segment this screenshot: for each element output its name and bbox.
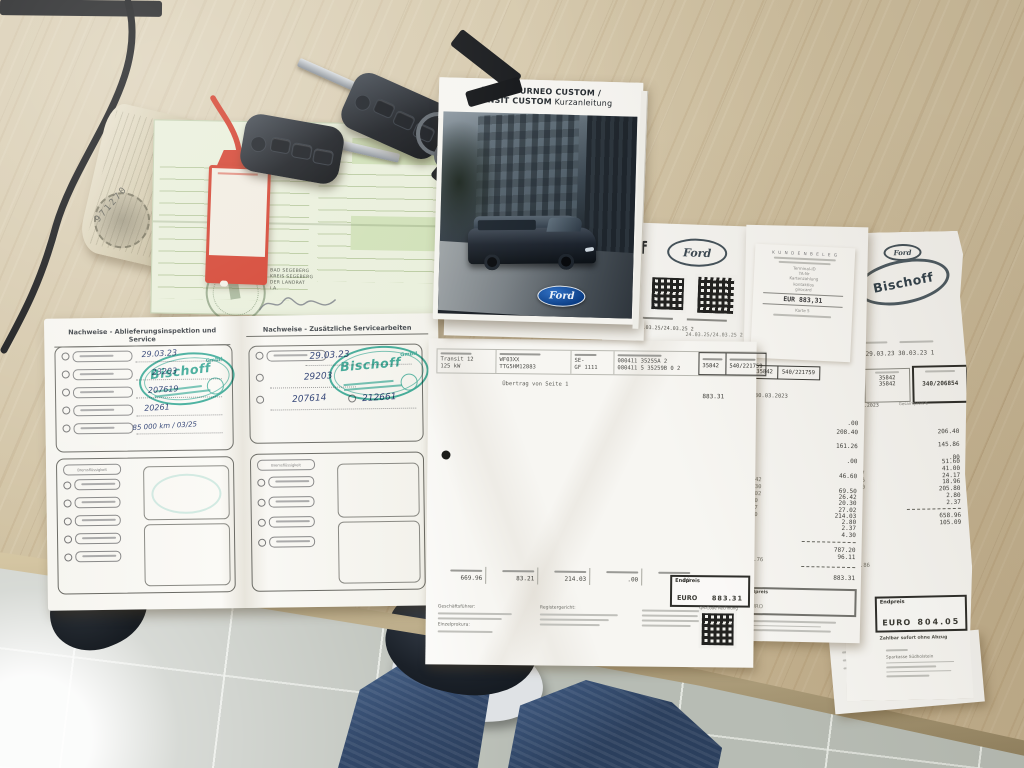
field-label: [502, 570, 534, 572]
field-label: [500, 353, 541, 355]
row-marker: [62, 388, 70, 396]
row-label: [276, 540, 310, 542]
total-value: .00: [627, 576, 638, 583]
invoice-header-table: Transit 12125 kW WF03XXTTG5HM12883 SE-GF…: [436, 348, 766, 376]
fine-print-line: [886, 670, 951, 673]
list-value: 208.40: [836, 428, 858, 437]
carryover-value: 883.31: [678, 393, 724, 400]
row-label: [82, 519, 116, 521]
fine-print-line: [642, 625, 691, 628]
fine-print-line: [642, 615, 698, 618]
field-label: [450, 570, 482, 572]
fine-print-line: [438, 630, 493, 633]
footer-label: Einzelprokura:: [438, 622, 470, 627]
code-cell: SE-GF 1111: [570, 351, 613, 374]
fine-print-line: [886, 649, 908, 651]
endpreis-label: Endpreis: [675, 578, 700, 584]
total-cell: 214.03: [537, 567, 589, 584]
service-right-header: Nachweise - Zusätzliche Servicearbeiten: [246, 323, 428, 337]
invoice-middle: K U N D E N B E L E G Terminal-ID TA-Nr …: [738, 225, 869, 643]
ford-manual-booklet: FORD TOURNEO CUSTOM / TRANSIT CUSTOM Kur…: [433, 77, 644, 325]
reg-cell: 080411 35255A 2080411 5 35259B 0 2: [613, 351, 694, 374]
field-label: [554, 571, 586, 573]
field-label: [658, 572, 690, 574]
qr-code: [651, 277, 684, 310]
ford-logo-text: Ford: [549, 290, 575, 302]
endpreis-box: Endpreis EURO: [740, 587, 857, 617]
total-value: 214.03: [564, 575, 586, 582]
photo-desk-scene: 971270 BAD SEGEBERG KREIS SEGEBERG DER L…: [0, 0, 1024, 768]
ford-oval-outline: Ford: [667, 238, 728, 268]
row-line: [136, 414, 222, 416]
service-page-right: Nachweise - Zusätzliche Servicearbeiten …: [242, 319, 436, 602]
subtotal-separator: [802, 541, 856, 543]
invoice-number-cell: 540/221759: [725, 353, 765, 374]
invoice-footer: Geschäftsführer: Einzelprokura: Register…: [438, 604, 712, 638]
list-value: 4.30: [841, 533, 856, 540]
key2-ford-button: [352, 92, 373, 113]
list-value: 161.26: [836, 439, 858, 454]
total-cell: .00: [589, 568, 641, 585]
invoice-number-box: 340/206854: [912, 365, 969, 404]
row-label-pill: [73, 405, 133, 417]
key1-ford-button: [249, 135, 268, 154]
handwritten-value: 207614: [292, 393, 327, 405]
vehicle-power: 125 kW: [440, 363, 492, 371]
list-value: 2.37: [946, 500, 961, 507]
fine-print-line: [642, 610, 705, 613]
amounts-tight: 26.4220.3027.02214.032.802.374.30: [834, 495, 857, 540]
row-marker: [258, 519, 266, 527]
row-label-pill: [72, 351, 132, 363]
van-side-window: [478, 220, 536, 230]
row-label: [274, 354, 308, 356]
row-marker: [62, 406, 70, 414]
row-marker: [256, 396, 264, 404]
stamp-field: [337, 463, 420, 518]
stamp-gmbh: GmbH: [400, 351, 418, 358]
field-label: [575, 354, 597, 356]
net-tax: 658.96 105.09: [939, 512, 961, 526]
row-label-pill: [74, 497, 120, 509]
list-value: 145.86: [938, 438, 960, 451]
row-label-pill: [268, 496, 314, 508]
invoice-number: 540/221759: [777, 366, 819, 379]
fine-print-line: [438, 617, 502, 620]
ford-oval-text: Ford: [894, 248, 912, 257]
total-cell: 669.96: [434, 566, 485, 583]
fine-print-line: [886, 675, 929, 677]
field-label: [925, 370, 955, 372]
carryover-label: Übertrag von Seite 1: [502, 381, 568, 388]
tag-print-line: [218, 172, 258, 175]
row-label-pill: [75, 533, 121, 545]
transit-van: [468, 209, 596, 268]
order-number: 35842: [702, 363, 722, 370]
tax-amount: 105.09: [939, 519, 961, 526]
row-label-pill: [269, 536, 315, 548]
group-label: Bremsflüssigkeit: [271, 463, 301, 467]
row-label: [80, 391, 114, 393]
field-label: [730, 358, 756, 360]
endpreis-total: 883.31: [712, 594, 743, 602]
row-marker: [258, 539, 266, 547]
van-windshield: [546, 217, 583, 231]
fine-print-line: [899, 340, 933, 342]
net-tax: 787.20 96.11: [834, 547, 856, 561]
row-label-pill: [74, 479, 120, 491]
order-number-2: 35842: [865, 380, 909, 387]
row-marker: [64, 517, 72, 525]
row-label: [275, 480, 309, 482]
vehicle-model: Transit 12: [440, 356, 492, 364]
fine-print-line: [746, 629, 831, 632]
row-label: [276, 520, 310, 522]
key2-lock-button: [372, 98, 396, 120]
row-label: [82, 537, 116, 539]
ford-oval-text: Ford: [683, 246, 711, 260]
booklet-cover-photo: Ford: [438, 111, 638, 318]
row-label-pill: [73, 369, 133, 381]
fine-print-line: [774, 314, 831, 319]
invoice-main: 24.03.25/24.03.25 2 Transit 12125 kW WF0…: [425, 338, 756, 667]
row-label: [276, 500, 310, 502]
fine-print-block: [746, 617, 846, 636]
signature: [255, 286, 340, 317]
order-invoice-box: 35842 540/221759: [698, 352, 766, 375]
row-marker: [62, 424, 70, 432]
subtotal-separator: [907, 508, 961, 510]
row-marker: [64, 553, 72, 561]
stamp-field: [338, 521, 421, 584]
totals-row: 669.96 83.21 214.03 .00 .00: [434, 566, 693, 585]
fine-print-line: [886, 665, 936, 668]
stamp-name: Bischoff: [339, 354, 401, 374]
total-value: 669.96: [460, 574, 482, 581]
row-label-pill: [73, 423, 133, 435]
row-label: [79, 355, 113, 357]
service-row: 85 000 km / 03/25: [56, 417, 232, 437]
fine-print-line: [643, 317, 673, 320]
field-label: [703, 358, 723, 360]
payment-note: Zahlbar sofort ohne Abzug: [880, 635, 948, 641]
qr-code: [702, 613, 734, 645]
row-marker: [63, 481, 71, 489]
amounts-spaced: 161.26.0046.6069.50: [835, 439, 858, 499]
stamp-gmbh: GmbH: [205, 356, 223, 364]
endpreis-label: Endpreis: [880, 599, 905, 606]
row-marker: [258, 499, 266, 507]
fine-print-line: [886, 661, 954, 664]
row-line: [137, 432, 223, 434]
footer-label: Registergericht:: [540, 605, 576, 610]
key2-blade: [297, 58, 357, 91]
field-label: [606, 571, 638, 573]
fine-print-line: [438, 612, 512, 615]
van-wheel: [558, 254, 574, 270]
fine-print-line: [687, 318, 727, 321]
fine-print-line: [746, 624, 821, 627]
row-marker: [64, 535, 72, 543]
red-key-tag: [205, 165, 271, 285]
bank-details: Sparkasse Südholstein: [886, 645, 959, 680]
row-label: [80, 373, 114, 375]
total-value: 83.21: [516, 575, 534, 582]
row-label: [80, 427, 114, 429]
fine-print-line: [540, 623, 600, 626]
row-label-pill: [269, 516, 315, 528]
row-marker: [64, 499, 72, 507]
row-label-pill: [75, 515, 121, 527]
stamp-emblem: [206, 376, 225, 395]
order-box: 35842 35842: [864, 368, 911, 403]
endpreis-box: Endpreis EURO 883.31: [670, 575, 750, 608]
endpreis-box: Endpreis EURO 804.05: [875, 595, 968, 633]
group-label: Bremsflüssigkeit: [77, 467, 107, 471]
order-number-cell: 35842: [699, 353, 725, 374]
key2-unlock-button: [392, 110, 416, 132]
total-cell: 83.21: [485, 567, 537, 584]
endpreis-currency: EURO: [882, 618, 911, 628]
key1-unlock-button: [291, 142, 313, 160]
field-label: [441, 352, 472, 354]
invoice-dates: 29.03.23 30.03.23 1: [866, 349, 935, 357]
row-marker: [257, 479, 265, 487]
total-separator: [801, 566, 855, 568]
amounts-tight: 51.6041.0024.1718.96205.802.802.37: [938, 459, 961, 507]
key1-lock-button: [269, 136, 291, 154]
service-empty-group: Bremsflüssigkeit: [250, 451, 426, 591]
field-label: [618, 354, 662, 356]
service-empty-group: Bremsflüssigkeit: [56, 456, 236, 594]
row-label-pill: [73, 387, 133, 399]
list-value: 206.40: [937, 425, 959, 438]
list-value: 46.60: [839, 469, 857, 484]
row-label: [82, 501, 116, 503]
footer-col-registry: Registergericht:: [540, 605, 632, 637]
invoice-number: 340/206854: [914, 379, 966, 387]
fine-print-line: [540, 613, 618, 616]
punch-hole: [441, 450, 450, 459]
invoice-total: 883.31: [833, 575, 855, 582]
stamp-name: Bischoff: [149, 360, 211, 382]
amounts-top: .00208.40: [836, 419, 858, 437]
fine-print-line: [746, 620, 836, 623]
row-line: [270, 408, 416, 411]
vin-line2: TTG5HM12883: [499, 364, 567, 372]
row-label-pill: [268, 476, 314, 488]
fine-print-line: [540, 618, 609, 621]
tax-amount: 96.11: [837, 554, 855, 561]
row-label: [82, 555, 116, 557]
fine-print-line: [642, 620, 702, 623]
booklet-subtitle: Kurzanleitung: [554, 97, 612, 108]
list-value: .00: [846, 454, 857, 469]
group-label-pill: Bremsflüssigkeit: [63, 464, 121, 476]
service-page-left: Nachweise - Ablieferungsinspektion und S…: [50, 322, 238, 605]
invoice-top-date: 24.03.25/24.03.25 2: [686, 332, 743, 339]
van-wheel: [484, 254, 500, 270]
bischoff-logo-text: Bischoff: [872, 269, 935, 296]
qr-code-label: QR-Code Rechnung: [699, 605, 738, 610]
handwritten-value: 85 000 km / 03/25: [132, 420, 197, 432]
stamp-emblem: [400, 373, 418, 391]
row-marker: [61, 352, 69, 360]
code-line2: GF 1111: [574, 364, 610, 371]
footer-label: Geschäftsführer:: [438, 604, 475, 609]
row-marker: [62, 370, 70, 378]
total-column-label: Gesamtpreis €: [899, 401, 928, 407]
vin-cell: WF03XXTTG5HM12883: [495, 350, 570, 373]
field-label: [875, 371, 899, 373]
key1-trunk-button: [312, 148, 334, 166]
endpreis-currency: EURO: [677, 594, 697, 602]
stamp-field: [144, 523, 231, 586]
row-marker: [256, 374, 264, 382]
card-payment-receipt: K U N D E N B E L E G Terminal-ID TA-Nr …: [750, 244, 855, 363]
row-label-pill: [75, 551, 121, 563]
invoice-number: 540/221759: [729, 363, 762, 370]
row-marker: [255, 352, 263, 360]
tag-red-band: [207, 255, 266, 283]
invoice-date: 30.03.2023: [755, 393, 788, 400]
receipt-amount: EUR 883,31: [763, 292, 843, 308]
bischoff-logo: Bischoff: [853, 251, 954, 312]
footer-col-management: Geschäftsführer: Einzelprokura:: [438, 604, 530, 636]
service-booklet: Nachweise - Ablieferungsinspektion und S…: [44, 313, 442, 610]
vehicle-cell: Transit 12125 kW: [436, 349, 495, 372]
qr-code: [697, 277, 734, 314]
row-label: [81, 483, 115, 485]
reg-line2: 080411 5 35259B 0 2: [617, 365, 691, 373]
group-label-pill: Bremsflüssigkeit: [257, 459, 315, 471]
green-field-mid: [350, 216, 443, 252]
list-value: .00: [847, 419, 858, 428]
row-label: [80, 409, 114, 411]
endpreis-total: 804.05: [917, 617, 960, 627]
bank-name: Sparkasse Südholstein: [886, 652, 958, 659]
